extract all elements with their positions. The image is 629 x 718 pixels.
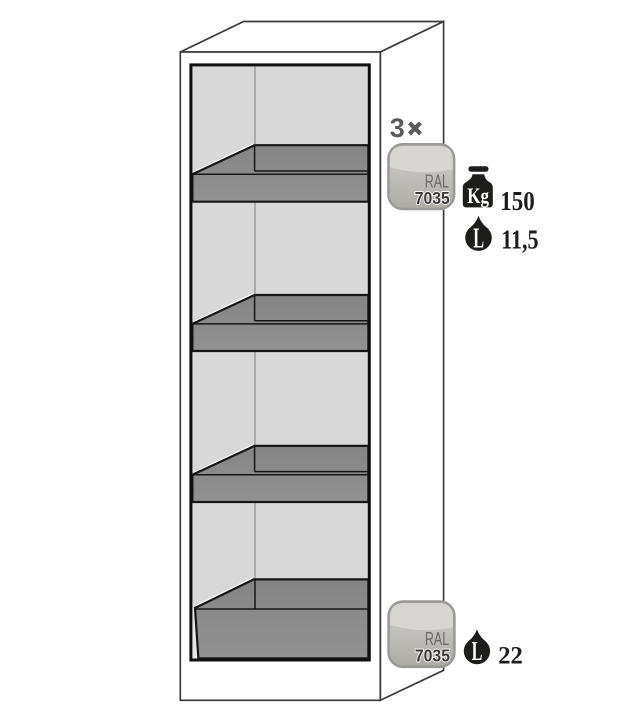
svg-text:150: 150 — [500, 185, 535, 216]
svg-text:Kg: Kg — [467, 183, 489, 208]
svg-text:22: 22 — [498, 643, 523, 670]
svg-text:7035: 7035 — [415, 188, 450, 208]
svg-text:L: L — [472, 635, 483, 666]
svg-text:3: 3 — [390, 113, 405, 143]
svg-text:L: L — [473, 223, 484, 254]
svg-text:11,5: 11,5 — [501, 224, 538, 255]
svg-text:7035: 7035 — [415, 646, 450, 666]
